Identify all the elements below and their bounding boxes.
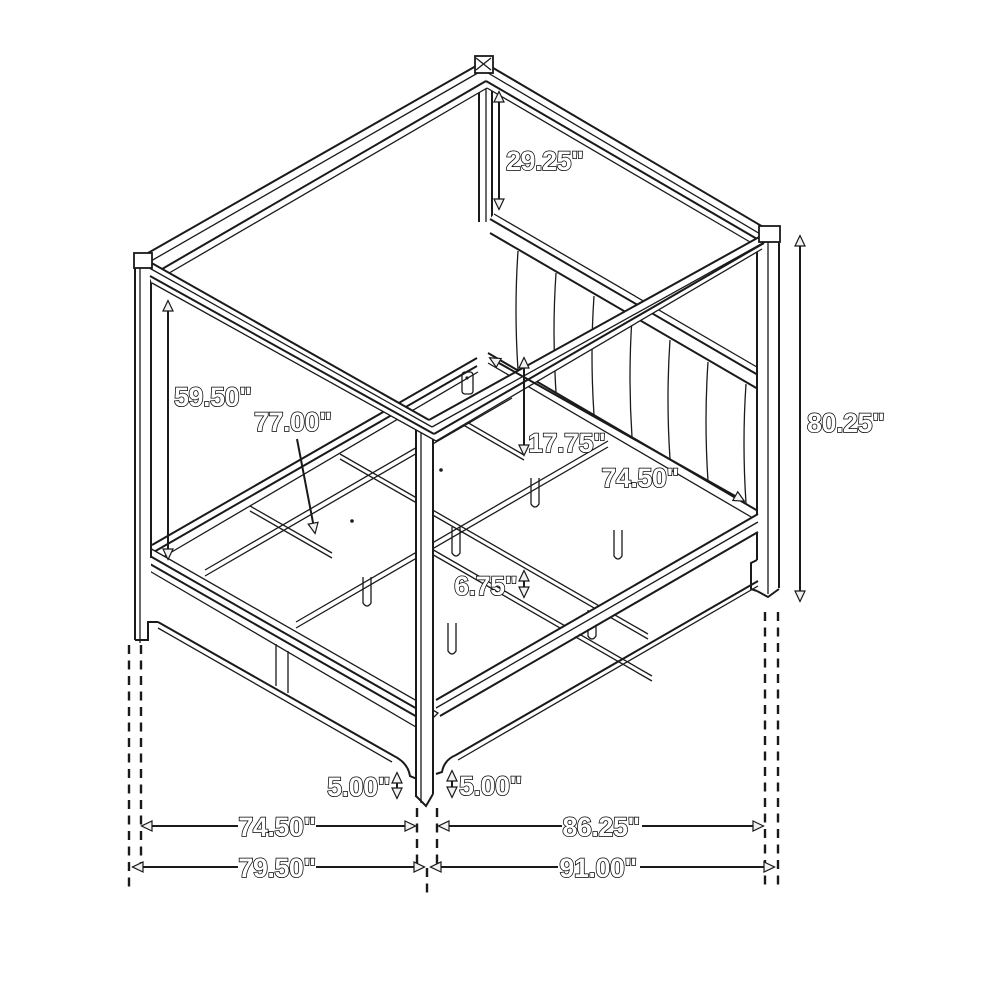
dim-label-5-00-left: 5.00" bbox=[327, 772, 390, 802]
dimension-front-leg-height-left: 5.00" bbox=[327, 772, 397, 802]
dim-label-17-75: 17.75" bbox=[528, 428, 605, 458]
diagram-canvas: 29.25" 59.50" 77.00" 17.75" 74.50" 80.25… bbox=[0, 0, 1000, 1000]
dim-label-91-00: 91.00" bbox=[559, 853, 636, 883]
dim-label-74-50-upper: 74.50" bbox=[601, 463, 678, 493]
dimension-inner-length-bottom: 86.25" bbox=[439, 812, 763, 842]
footboard-side bbox=[136, 543, 438, 779]
projection-lines bbox=[129, 612, 778, 898]
dim-label-29-25: 29.25" bbox=[506, 146, 583, 176]
dim-label-5-00-right: 5.00" bbox=[459, 771, 522, 801]
dim-label-6-75: 6.75" bbox=[454, 571, 517, 601]
right-post bbox=[751, 236, 780, 598]
dim-label-80-25: 80.25" bbox=[807, 408, 884, 438]
bed-dimension-diagram: 29.25" 59.50" 77.00" 17.75" 74.50" 80.25… bbox=[0, 0, 1000, 1000]
dimension-inner-width-bottom: 74.50" bbox=[142, 812, 415, 842]
left-post bbox=[135, 262, 158, 643]
dimension-front-leg-height-right: 5.00" bbox=[452, 771, 522, 801]
dim-label-59-50: 59.50" bbox=[174, 382, 251, 412]
back-post bbox=[478, 70, 493, 222]
dimension-overall-length-bottom: 91.00" bbox=[431, 853, 774, 883]
left-corner-cap bbox=[134, 253, 152, 268]
dimension-overall-width-bottom: 79.50" bbox=[133, 853, 424, 883]
right-corner-cap bbox=[759, 226, 780, 242]
dimension-rail-to-slat-gap: 6.75" bbox=[454, 571, 524, 601]
dimension-overall-height: 80.25" bbox=[800, 236, 884, 601]
dim-label-77-00: 77.00" bbox=[254, 407, 331, 437]
front-post bbox=[416, 426, 434, 806]
dim-label-74-50-bottom: 74.50" bbox=[238, 812, 315, 842]
dim-label-86-25: 86.25" bbox=[562, 812, 639, 842]
dim-label-79-50: 79.50" bbox=[238, 853, 315, 883]
